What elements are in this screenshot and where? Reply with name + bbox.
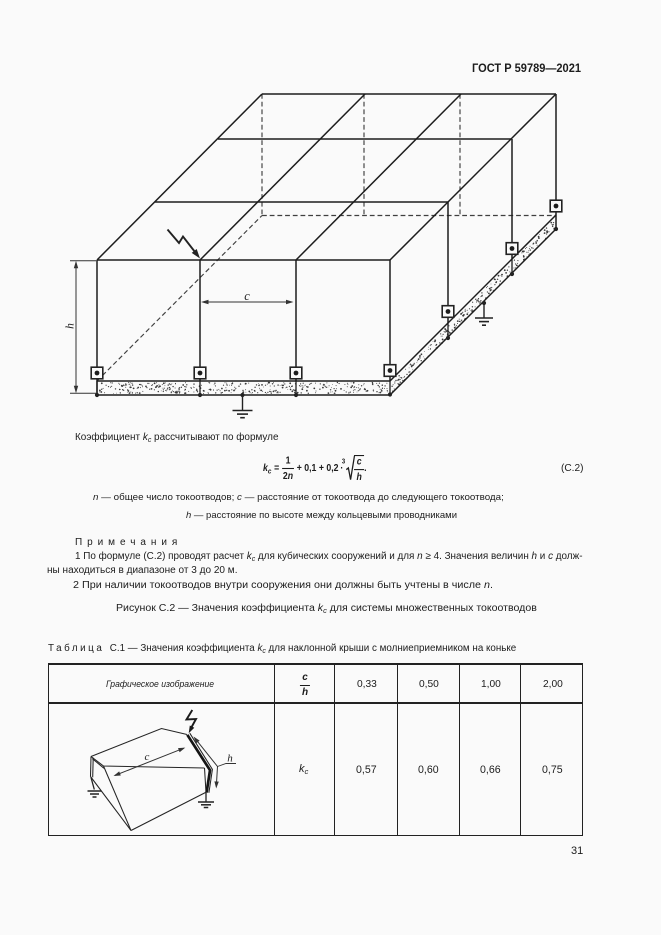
svg-text:c: c	[244, 289, 250, 303]
svg-text:h: h	[65, 323, 77, 329]
